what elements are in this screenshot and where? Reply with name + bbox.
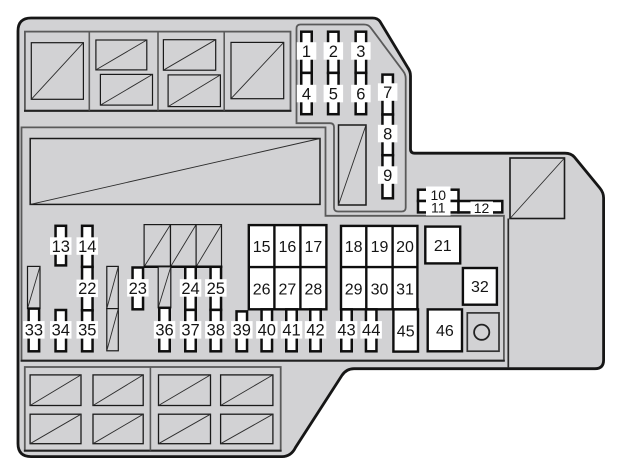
svg-text:8: 8 [383, 126, 392, 144]
svg-text:46: 46 [436, 323, 454, 340]
svg-text:38: 38 [207, 322, 225, 340]
svg-text:32: 32 [471, 279, 489, 296]
svg-text:1: 1 [302, 43, 311, 61]
svg-text:39: 39 [233, 322, 251, 340]
svg-text:23: 23 [129, 280, 147, 298]
svg-text:42: 42 [306, 322, 324, 340]
svg-text:22: 22 [78, 280, 96, 298]
svg-text:17: 17 [305, 239, 323, 256]
svg-text:29: 29 [345, 281, 363, 298]
svg-text:44: 44 [362, 322, 380, 340]
svg-text:25: 25 [207, 280, 225, 298]
svg-text:11: 11 [431, 200, 446, 216]
svg-text:13: 13 [52, 238, 70, 256]
svg-text:24: 24 [181, 280, 199, 298]
svg-text:15: 15 [253, 239, 271, 256]
svg-text:37: 37 [181, 322, 199, 340]
svg-text:27: 27 [279, 281, 297, 298]
svg-text:21: 21 [434, 238, 452, 255]
svg-text:33: 33 [25, 322, 43, 340]
svg-text:34: 34 [52, 322, 70, 340]
svg-text:9: 9 [383, 167, 392, 185]
svg-text:19: 19 [371, 239, 389, 256]
svg-text:18: 18 [345, 239, 363, 256]
svg-text:16: 16 [279, 239, 297, 256]
svg-text:36: 36 [155, 322, 173, 340]
svg-text:30: 30 [371, 281, 389, 298]
svg-text:35: 35 [78, 322, 96, 340]
svg-text:2: 2 [329, 43, 338, 61]
svg-text:41: 41 [282, 322, 300, 340]
svg-text:43: 43 [337, 322, 355, 340]
svg-text:28: 28 [305, 281, 323, 298]
svg-text:40: 40 [258, 322, 276, 340]
svg-text:12: 12 [474, 200, 490, 216]
svg-text:3: 3 [356, 43, 365, 61]
svg-text:5: 5 [329, 86, 338, 104]
svg-text:20: 20 [396, 239, 414, 256]
svg-text:45: 45 [397, 323, 415, 340]
svg-text:4: 4 [302, 86, 311, 104]
svg-text:14: 14 [78, 238, 96, 256]
svg-text:26: 26 [253, 281, 271, 298]
svg-text:31: 31 [396, 281, 414, 298]
svg-text:7: 7 [383, 84, 392, 102]
svg-text:6: 6 [356, 86, 365, 104]
